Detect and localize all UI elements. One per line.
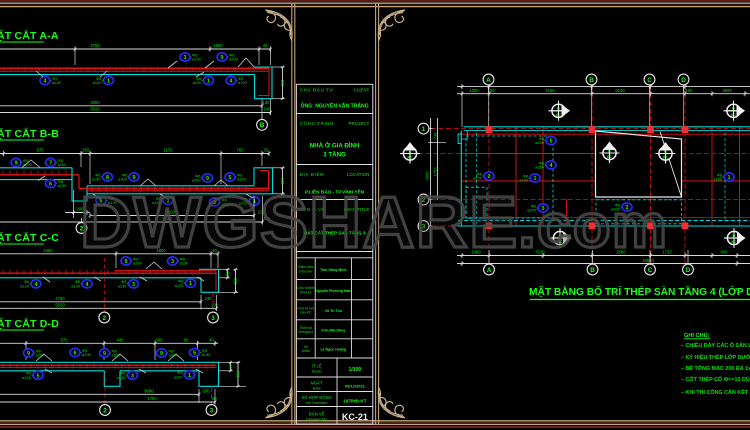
svg-text:1: 1: [534, 176, 537, 182]
svg-text:Lê Ngọc Hoàng: Lê Ngọc Hoàng: [321, 348, 347, 352]
svg-text:a130: a130: [58, 183, 68, 188]
svg-text:– CỐT THÉP CÓ Φ<=10 DÙNG AI: – CỐT THÉP CÓ Φ<=10 DÙNG AI: [681, 375, 750, 383]
svg-text:730: 730: [432, 132, 437, 139]
svg-text:1300: 1300: [469, 88, 479, 93]
svg-text:9090: 9090: [144, 389, 154, 394]
svg-text:Vũ Trí Thụ: Vũ Trí Thụ: [325, 309, 342, 313]
svg-text:a150: a150: [713, 177, 723, 182]
svg-text:8: 8: [106, 175, 109, 181]
svg-text:a130: a130: [82, 352, 92, 357]
svg-text:a200: a200: [58, 162, 68, 167]
svg-text:4160: 4160: [545, 88, 555, 93]
svg-text:3: 3: [131, 373, 134, 379]
svg-text:9: 9: [206, 176, 209, 182]
svg-text:230: 230: [205, 296, 213, 301]
svg-text:Draw: Draw: [302, 349, 311, 353]
svg-text:40: 40: [263, 43, 268, 48]
svg-text:90: 90: [225, 271, 230, 276]
svg-text:4: 4: [35, 282, 38, 288]
svg-text:4: 4: [44, 79, 47, 85]
svg-text:9: 9: [160, 351, 163, 357]
svg-text:NGÀY: NGÀY: [311, 380, 323, 385]
svg-text:9: 9: [221, 55, 224, 61]
svg-text:Drawing No: Drawing No: [306, 417, 328, 421]
svg-text:09/12/2021: 09/12/2021: [345, 384, 366, 389]
svg-text:a130: a130: [192, 57, 202, 62]
svg-text:6: 6: [74, 351, 77, 357]
svg-text:9: 9: [133, 175, 136, 181]
svg-text:970: 970: [61, 338, 69, 343]
svg-text:440: 440: [117, 338, 125, 343]
svg-text:a150: a150: [535, 140, 545, 145]
svg-text:– KHI THI CÔNG CẦN KẾT HỢP VỚI: – KHI THI CÔNG CẦN KẾT HỢP VỚI: [681, 388, 750, 396]
svg-text:BẢN VẼ: BẢN VẼ: [309, 411, 325, 416]
svg-text:1: 1: [189, 281, 192, 287]
svg-text:a120: a120: [238, 80, 248, 85]
svg-text:3: 3: [184, 55, 187, 61]
svg-text:4: 4: [550, 163, 553, 169]
svg-text:B: B: [590, 267, 595, 274]
svg-text:2450: 2450: [43, 248, 53, 253]
svg-text:KC: KC: [663, 156, 668, 160]
svg-text:4760: 4760: [55, 296, 65, 301]
svg-text:A: A: [409, 148, 412, 153]
svg-text:2: 2: [103, 407, 107, 414]
svg-text:– KÝ HIỆU THÉP LỚP DƯỚI ĐI LIỀ: – KÝ HIỆU THÉP LỚP DƯỚI ĐI LIỀN: [681, 353, 750, 361]
svg-text:3: 3: [210, 407, 214, 414]
svg-text:a130: a130: [22, 375, 32, 380]
svg-text:760: 760: [237, 148, 245, 153]
svg-text:40: 40: [209, 338, 214, 343]
svg-text:4: 4: [230, 79, 233, 85]
svg-text:C: C: [608, 148, 611, 153]
svg-text:a120: a120: [20, 283, 30, 288]
svg-text:D: D: [686, 267, 691, 274]
svg-text:CLIENT: CLIENT: [353, 88, 369, 93]
svg-text:MẶT CẮT A-A: MẶT CẮT A-A: [0, 29, 59, 42]
svg-text:a120: a120: [193, 80, 203, 85]
svg-text:260: 260: [236, 370, 241, 378]
svg-text:D: D: [681, 77, 686, 84]
svg-text:C: C: [647, 77, 652, 84]
svg-text:A: A: [487, 267, 492, 274]
svg-text:100: 100: [264, 107, 272, 112]
svg-text:9: 9: [103, 351, 106, 357]
svg-text:5: 5: [229, 175, 232, 181]
svg-text:D: D: [733, 233, 736, 238]
svg-text:SỐ HỢP ĐỒNG: SỐ HỢP ĐỒNG: [302, 395, 332, 400]
svg-text:KC: KC: [731, 113, 736, 117]
svg-text:150: 150: [686, 88, 694, 93]
svg-text:600: 600: [721, 250, 729, 255]
svg-text:90: 90: [228, 364, 233, 369]
svg-text:a120: a120: [174, 374, 184, 379]
svg-text:Designer: Designer: [299, 330, 314, 334]
svg-text:DWGSHARE.com: DWGSHARE.com: [80, 183, 668, 263]
svg-text:a130: a130: [71, 283, 81, 288]
svg-text:5020: 5020: [90, 107, 100, 112]
svg-text:690: 690: [156, 338, 164, 343]
svg-text:1800: 1800: [213, 43, 223, 48]
svg-text:1: 1: [188, 373, 191, 379]
svg-text:ÔNG: NGUYỄN VĂN TRẮNG: ÔNG: NGUYỄN VĂN TRẮNG: [300, 102, 368, 110]
svg-text:B: B: [589, 77, 594, 84]
svg-text:C: C: [664, 148, 667, 153]
svg-text:LOCATION: LOCATION: [347, 172, 370, 177]
svg-text:60: 60: [184, 338, 189, 343]
svg-text:7: 7: [49, 161, 52, 167]
svg-text:5: 5: [37, 373, 40, 379]
svg-text:No Contract: No Contract: [306, 401, 328, 405]
svg-text:350: 350: [280, 79, 285, 87]
svg-text:5: 5: [550, 139, 553, 145]
svg-text:KC-21: KC-21: [342, 412, 368, 422]
svg-text:a130: a130: [117, 375, 127, 380]
svg-text:1750: 1750: [432, 167, 437, 177]
svg-text:2700: 2700: [90, 43, 100, 48]
svg-text:TỈ LỆ: TỈ LỆ: [312, 364, 322, 369]
svg-text:4: 4: [86, 282, 89, 288]
svg-text:35: 35: [264, 148, 269, 153]
svg-text:6240: 6240: [615, 88, 625, 93]
svg-text:1760: 1760: [147, 396, 157, 401]
svg-text:9: 9: [15, 161, 18, 167]
svg-text:2: 2: [488, 174, 491, 180]
svg-text:a200: a200: [229, 57, 239, 62]
svg-text:230: 230: [203, 389, 211, 394]
svg-text:MẶT BẰNG BỐ TRÍ THÉP SÀN TẦNG: MẶT BẰNG BỐ TRÍ THÉP SÀN TẦNG 4 (LỚP DƯỚ…: [529, 284, 750, 298]
svg-text:160: 160: [82, 148, 90, 153]
svg-text:a300: a300: [118, 177, 128, 182]
svg-text:PROJECT: PROJECT: [349, 121, 370, 126]
svg-text:3000: 3000: [424, 171, 429, 181]
svg-text:a120: a120: [175, 283, 185, 288]
svg-text:B: B: [260, 122, 265, 129]
svg-text:A: A: [486, 77, 491, 84]
svg-text:ĐỊA ĐIỂM: ĐỊA ĐIỂM: [300, 172, 324, 177]
svg-text:970: 970: [37, 148, 45, 153]
svg-text:Trần Mai Dũng: Trần Mai Dũng: [321, 329, 345, 333]
svg-text:a130: a130: [202, 352, 212, 357]
svg-text:2: 2: [103, 315, 107, 322]
svg-text:a150: a150: [535, 165, 545, 170]
svg-text:1: 1: [422, 126, 426, 133]
svg-text:C: C: [648, 267, 653, 274]
svg-text:KC: KC: [732, 240, 737, 244]
svg-text:5020: 5020: [55, 303, 65, 308]
svg-text:3: 3: [211, 315, 215, 322]
svg-text:100: 100: [211, 303, 219, 308]
svg-text:– CHIỀU DÀY CÁC Ô SÀN LÀ 100: – CHIỀU DÀY CÁC Ô SÀN LÀ 100: [681, 341, 750, 349]
svg-text:197/HĐ-KT: 197/HĐ-KT: [343, 398, 366, 403]
svg-text:KC: KC: [408, 156, 413, 160]
svg-text:3: 3: [132, 282, 135, 288]
svg-text:MẶT CẮT C-C: MẶT CẮT C-C: [0, 231, 59, 244]
svg-text:Nguyễn Phương Nam: Nguyễn Phương Nam: [315, 289, 351, 293]
svg-text:a120: a120: [52, 80, 62, 85]
svg-text:CHỦ ĐẦU TƯ: CHỦ ĐẦU TƯ: [300, 88, 334, 93]
svg-text:1170: 1170: [163, 148, 173, 153]
svg-text:– BÊ TÔNG MÁC 200 ĐÁ 1x2 DÀY: – BÊ TÔNG MÁC 200 ĐÁ 1x2 DÀY: [681, 364, 750, 372]
svg-text:260: 260: [233, 277, 238, 285]
svg-text:Trần Hồng Minh: Trần Hồng Minh: [320, 268, 346, 272]
svg-text:a130: a130: [118, 283, 128, 288]
svg-text:a130: a130: [92, 177, 102, 182]
svg-text:KC: KC: [607, 155, 612, 159]
svg-text:D: D: [732, 106, 735, 111]
svg-text:6: 6: [49, 182, 52, 188]
svg-text:CÔNG TRÌNH: CÔNG TRÌNH: [300, 121, 334, 126]
svg-text:GHI CHÚ:: GHI CHÚ:: [684, 332, 710, 339]
svg-text:3 TẦNG: 3 TẦNG: [323, 152, 346, 159]
svg-text:1/100: 1/100: [349, 367, 362, 373]
svg-text:thiết kế: thiết kế: [300, 290, 312, 294]
svg-text:130: 130: [263, 100, 271, 105]
svg-text:1: 1: [207, 79, 210, 85]
svg-text:Date: Date: [313, 386, 321, 390]
svg-text:5: 5: [193, 351, 196, 357]
svg-text:Scale: Scale: [312, 370, 322, 374]
svg-text:a150: a150: [519, 178, 529, 183]
svg-text:a120: a120: [93, 80, 103, 85]
svg-text:B: B: [557, 106, 560, 111]
svg-text:1: 1: [107, 79, 110, 85]
svg-text:KC: KC: [556, 113, 561, 117]
svg-text:9: 9: [27, 351, 30, 357]
svg-text:NHÀ Ở GIA ĐÌNH: NHÀ Ở GIA ĐÌNH: [310, 142, 360, 150]
svg-text:a200: a200: [192, 178, 202, 183]
svg-text:a130: a130: [237, 177, 247, 182]
svg-text:MẶT CẮT D-D: MẶT CẮT D-D: [0, 317, 59, 330]
svg-text:3600: 3600: [722, 88, 732, 93]
svg-text:Director: Director: [299, 269, 313, 273]
svg-text:1: 1: [728, 175, 731, 181]
svg-text:a150: a150: [473, 176, 483, 181]
svg-text:4050: 4050: [90, 100, 100, 105]
svg-text:cấu KC: cấu KC: [300, 311, 312, 315]
svg-text:MẶT CẮT B-B: MẶT CẮT B-B: [0, 127, 59, 140]
